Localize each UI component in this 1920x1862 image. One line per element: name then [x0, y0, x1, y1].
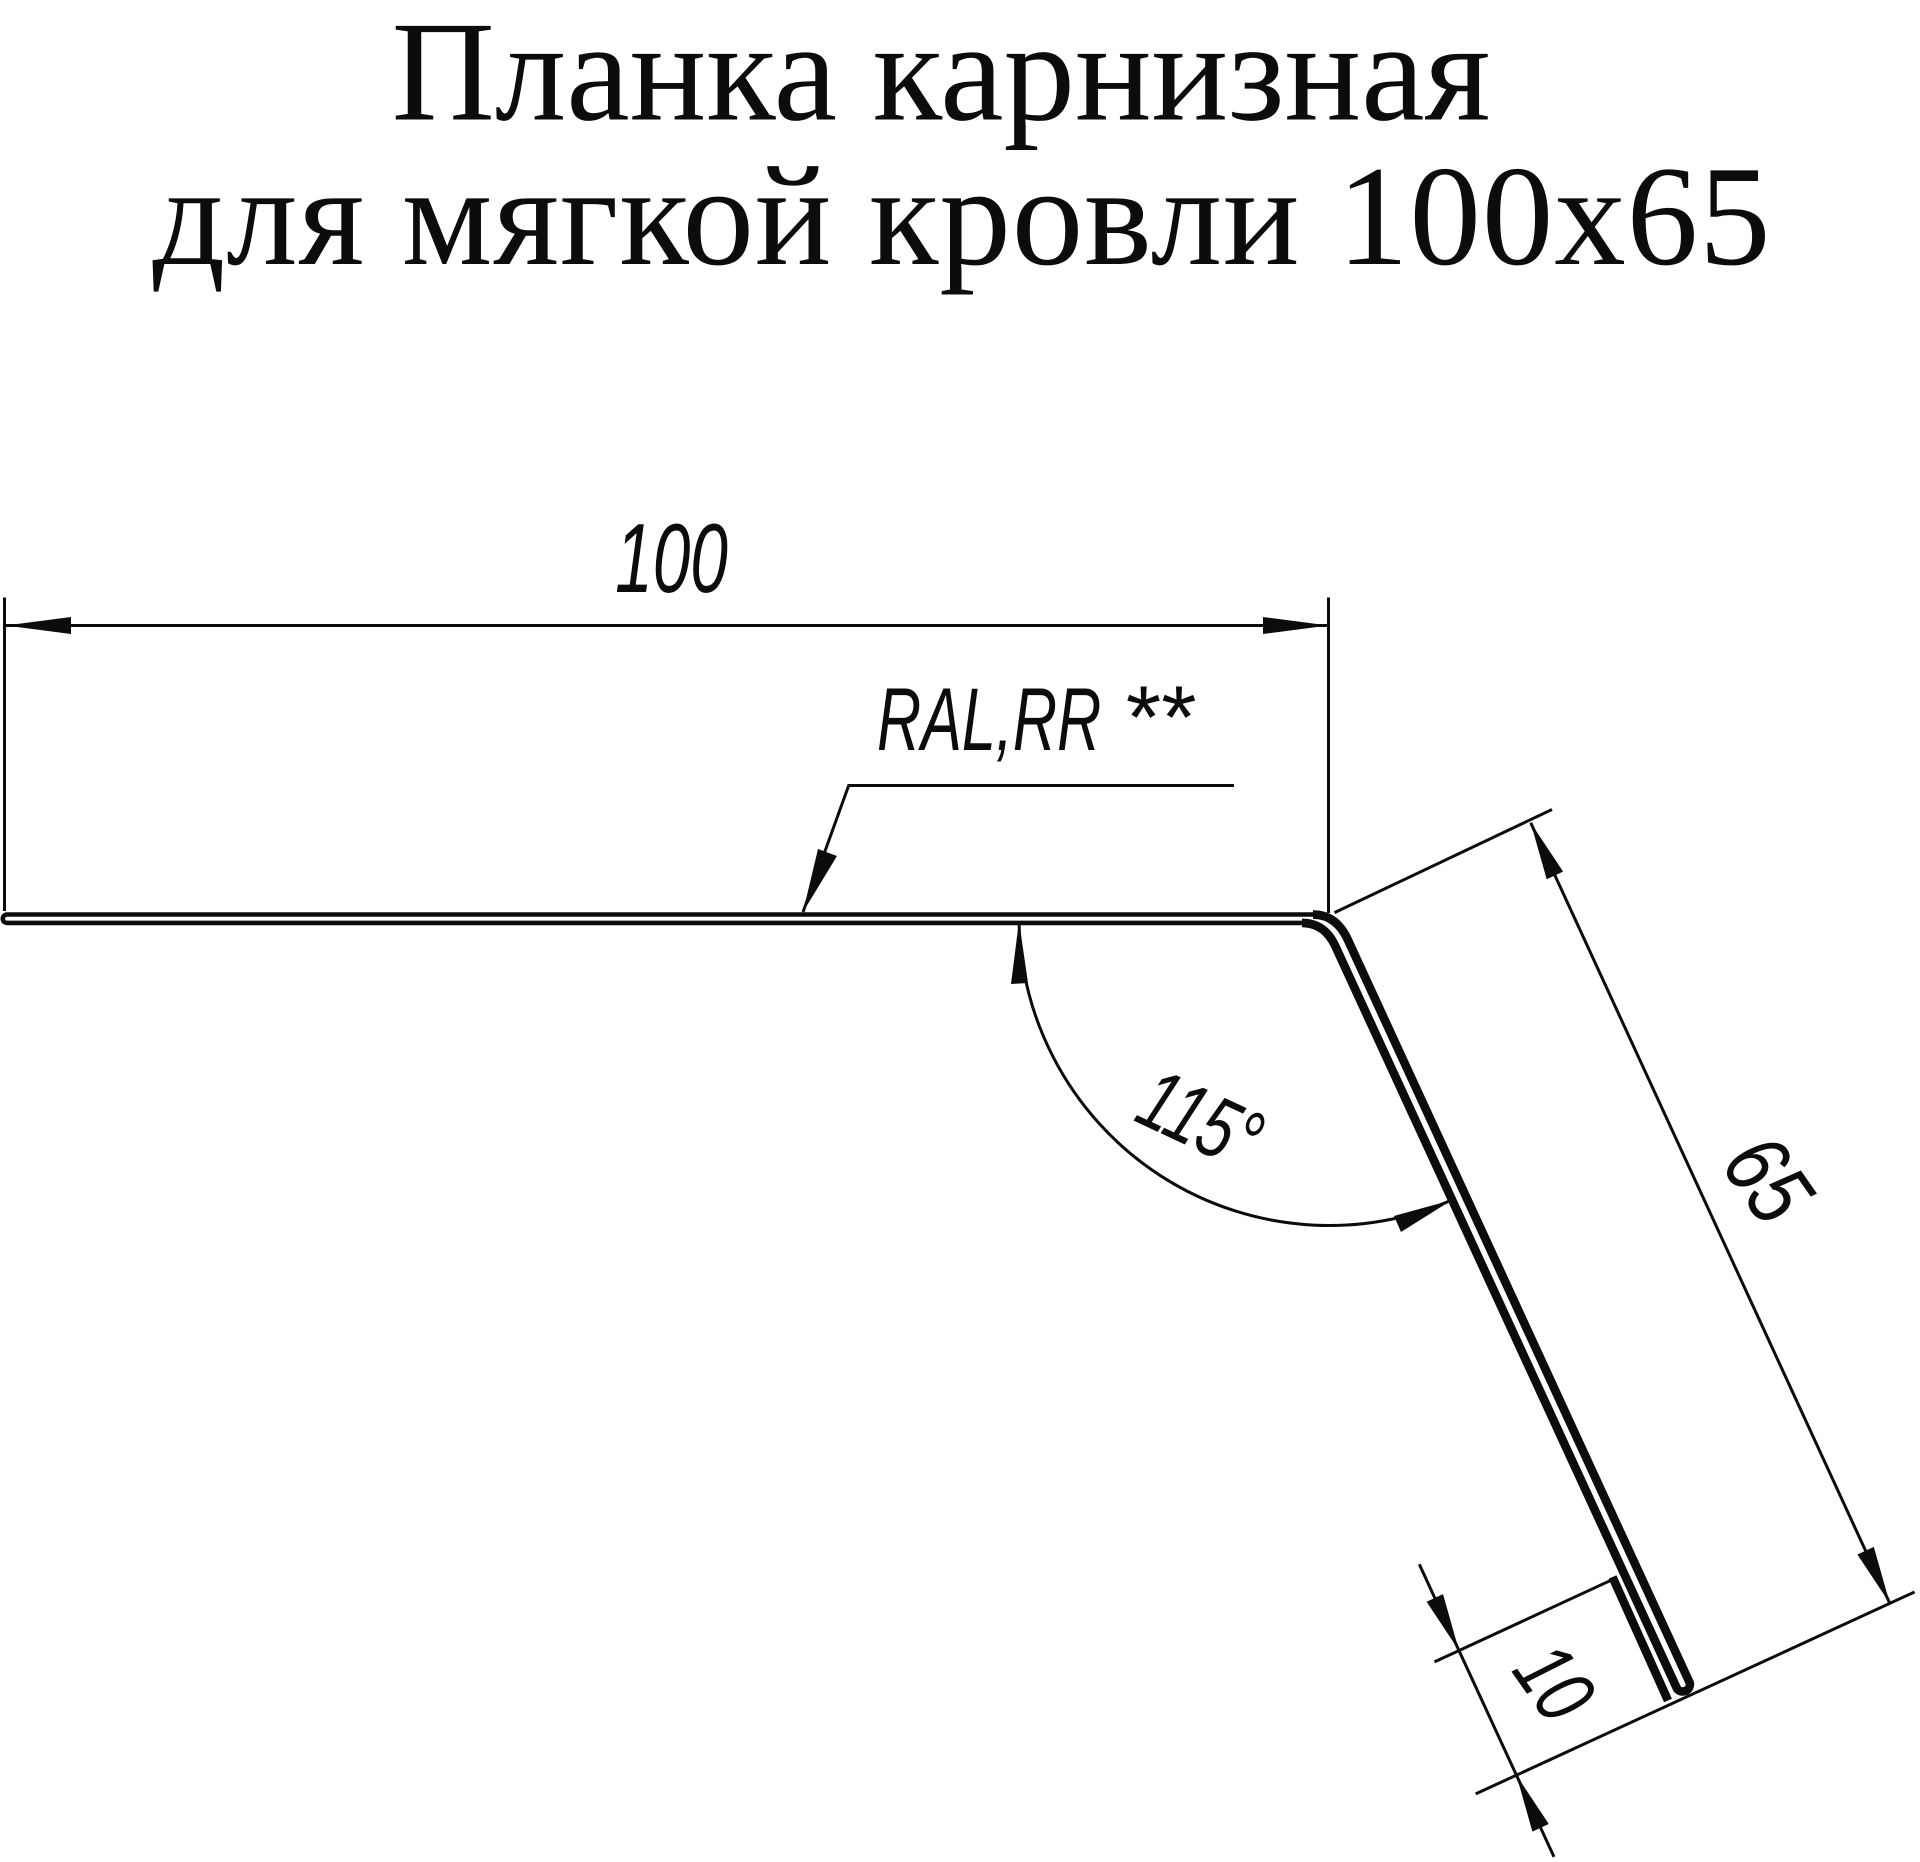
svg-text:Планка карнизная: Планка карнизная	[392, 0, 1491, 151]
svg-text:**: **	[1122, 669, 1196, 768]
svg-text:100: 100	[615, 504, 728, 613]
svg-text:RAL,RR: RAL,RR	[877, 671, 1101, 770]
svg-text:для мягкой кровли 100х65: для мягкой кровли 100х65	[153, 137, 1772, 295]
